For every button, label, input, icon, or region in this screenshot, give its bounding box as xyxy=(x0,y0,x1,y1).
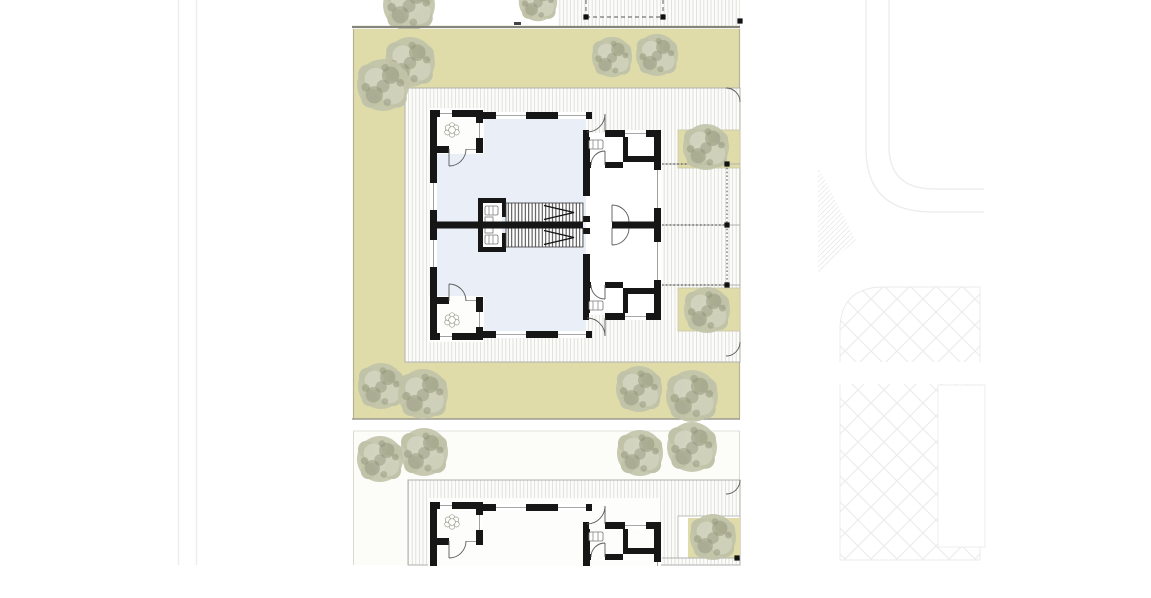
tree xyxy=(666,370,718,422)
tree xyxy=(357,436,403,482)
post xyxy=(724,222,729,227)
post xyxy=(737,18,742,23)
neighbour-deck-hatch xyxy=(558,0,740,26)
post xyxy=(583,14,588,19)
tree xyxy=(616,366,662,412)
tree xyxy=(690,514,736,560)
tree xyxy=(400,428,448,476)
post xyxy=(724,161,729,166)
site-plan-canvas xyxy=(0,0,1151,598)
site-plan-drawing xyxy=(0,0,1151,598)
tree xyxy=(636,34,678,76)
tree xyxy=(617,430,663,476)
main-building xyxy=(428,108,661,342)
tree xyxy=(683,124,729,170)
post xyxy=(660,14,665,19)
bottom-crop-band xyxy=(0,566,1151,598)
boundary-tick xyxy=(514,22,521,25)
tree xyxy=(684,287,730,333)
post xyxy=(734,555,739,560)
tree xyxy=(358,363,404,409)
tree xyxy=(667,422,717,472)
post xyxy=(724,282,729,287)
tree xyxy=(357,59,409,111)
tree xyxy=(592,37,632,77)
party-wall-left xyxy=(437,222,583,229)
tree xyxy=(398,369,448,419)
party-wall-right xyxy=(612,222,661,229)
